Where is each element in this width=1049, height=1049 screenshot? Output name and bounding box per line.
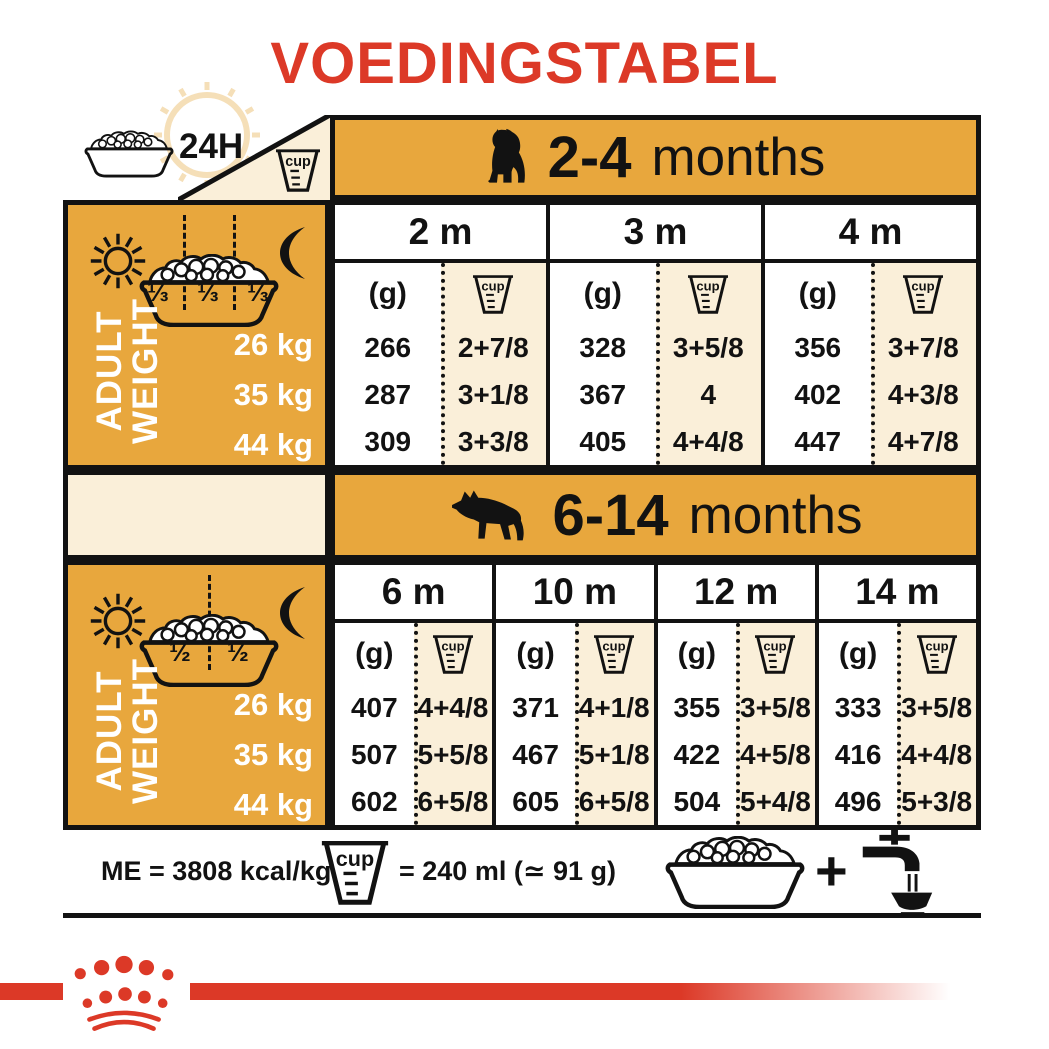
- month-column-4m: 4 m (g) cup 3563+7/8 4024+3/8 4474+7/8: [761, 205, 976, 465]
- cups-value: 3+1/8: [441, 372, 547, 419]
- age-word: months: [652, 127, 826, 188]
- meals-panel-2-4-months: ⅓ ⅓ ⅓ ADULT WEIGHT 26 kg 35 kg 44 kg: [63, 200, 330, 470]
- cups-value: 3+7/8: [871, 325, 977, 372]
- grams-value: 504: [658, 778, 737, 825]
- grams-value: 356: [765, 325, 871, 372]
- portion-fraction: ½: [214, 637, 262, 668]
- puppy-silhouette-icon: [486, 127, 528, 189]
- cups-value: 6+5/8: [575, 778, 654, 825]
- feeding-table: 24H cup 2-4 months: [63, 115, 981, 918]
- svg-text:cup: cup: [697, 279, 720, 294]
- moon-icon: [273, 585, 315, 641]
- cups-value: 3+5/8: [736, 685, 815, 732]
- svg-text:cup: cup: [482, 279, 505, 294]
- cups-value: 3+3/8: [441, 418, 547, 465]
- grams-value: 333: [819, 685, 898, 732]
- month-column-14m: 14 m (g) cup 3333+5/8 4164+4/8 4965+3/8: [815, 565, 976, 825]
- month-header: 14 m: [819, 565, 976, 623]
- measuring-cup-icon: cup: [276, 146, 320, 194]
- grams-value: 407: [335, 685, 414, 732]
- grams-value: 266: [335, 325, 441, 372]
- plus-sign: +: [815, 830, 848, 910]
- grams-unit: (g): [335, 263, 441, 325]
- cups-value: 3+5/8: [656, 325, 762, 372]
- month-column-6m: 6 m (g) cup 4074+4/8 5075+5/8 6026+5/8: [335, 565, 492, 825]
- month-values: (g) cup 2662+7/8 2873+1/8 3093+3/8: [335, 263, 546, 465]
- measuring-cup-icon: cup: [656, 263, 762, 325]
- section-header-6-14-months: 6-14 months: [330, 470, 981, 560]
- grams-unit: (g): [765, 263, 871, 325]
- daily-ration-legend: 24H cup: [63, 115, 330, 200]
- grams-value: 405: [550, 418, 656, 465]
- grams-unit: (g): [496, 623, 575, 685]
- month-header: 12 m: [658, 565, 815, 623]
- brand-stripe-left: [0, 983, 63, 1000]
- grams-unit: (g): [550, 263, 656, 325]
- weight-label: 26 kg: [205, 320, 325, 370]
- month-values: (g) cup 3333+5/8 4164+4/8 4965+3/8: [819, 623, 976, 825]
- measuring-cup-icon: cup: [321, 836, 389, 908]
- month-values: (g) cup 3553+5/8 4224+5/8 5045+4/8: [658, 623, 815, 825]
- month-column-2m: 2 m (g) cup 2662+7/8 2873+1/8 3093+3/8: [335, 205, 546, 465]
- section-header-2-4-months: 2-4 months: [330, 115, 981, 200]
- month-column-3m: 3 m (g) cup 3283+5/8 3674 4054+4/8: [546, 205, 761, 465]
- footer-info-strip: ME = 3808 kcal/kg cup = 240 ml (≃ 91 g) …: [63, 830, 981, 918]
- water-tap-icon: [857, 830, 935, 918]
- grams-unit: (g): [819, 623, 898, 685]
- brand-stripe-right: [190, 983, 982, 1000]
- month-column-12m: 12 m (g) cup 3553+5/8 4224+5/8 5045+4/8: [654, 565, 815, 825]
- grams-unit: (g): [658, 623, 737, 685]
- food-bowl-icon: [81, 123, 177, 185]
- royal-canin-crown-logo: [66, 950, 180, 1034]
- cups-value: 5+4/8: [736, 778, 815, 825]
- weight-label: 44 kg: [205, 420, 325, 470]
- portion-fraction: ⅓: [234, 277, 282, 308]
- adult-weight-label: ADULT WEIGHT: [80, 291, 176, 451]
- svg-text:cup: cup: [912, 279, 935, 294]
- grams-value: 605: [496, 778, 575, 825]
- month-header: 10 m: [496, 565, 653, 623]
- feeding-grid-2-4-months: 2 m (g) cup 2662+7/8 2873+1/8 3093+3/8: [330, 200, 981, 470]
- measuring-cup-icon: cup: [575, 623, 654, 685]
- grams-value: 416: [819, 732, 898, 779]
- measuring-cup-icon: cup: [736, 623, 815, 685]
- cups-value: 4+7/8: [871, 418, 977, 465]
- cups-value: 4+4/8: [656, 418, 762, 465]
- cups-value: 6+5/8: [414, 778, 493, 825]
- grams-value: 467: [496, 732, 575, 779]
- grams-value: 355: [658, 685, 737, 732]
- weight-rows: 26 kg 35 kg 44 kg: [205, 680, 325, 830]
- grams-value: 367: [550, 372, 656, 419]
- grams-value: 602: [335, 778, 414, 825]
- cups-value: 2+7/8: [441, 325, 547, 372]
- grams-value: 402: [765, 372, 871, 419]
- weight-label: 35 kg: [205, 730, 325, 780]
- cup-equivalence: = 240 ml (≃ 91 g): [399, 830, 616, 913]
- grams-value: 309: [335, 418, 441, 465]
- month-values: (g) cup 3283+5/8 3674 4054+4/8: [550, 263, 761, 465]
- svg-text:cup: cup: [925, 639, 948, 654]
- month-values: (g) cup 3714+1/8 4675+1/8 6056+5/8: [496, 623, 653, 825]
- month-column-10m: 10 m (g) cup 3714+1/8 4675+1/8 6056+5/8: [492, 565, 653, 825]
- svg-text:cup: cup: [336, 846, 374, 871]
- svg-text:cup: cup: [441, 639, 464, 654]
- grams-unit: (g): [335, 623, 414, 685]
- grams-value: 328: [550, 325, 656, 372]
- feeding-table-page: VOEDINGSTABEL 24H cup: [0, 0, 1049, 1049]
- spacer-cell: [63, 470, 330, 560]
- cups-value: 4+4/8: [414, 685, 493, 732]
- weight-label: 26 kg: [205, 680, 325, 730]
- weight-label: 44 kg: [205, 780, 325, 830]
- grams-value: 496: [819, 778, 898, 825]
- svg-text:cup: cup: [764, 639, 787, 654]
- cups-value: 4+1/8: [575, 685, 654, 732]
- measuring-cup-icon: cup: [897, 623, 976, 685]
- cup-label: cup: [285, 154, 311, 170]
- cups-value: 4+3/8: [871, 372, 977, 419]
- measuring-cup-icon: cup: [871, 263, 977, 325]
- moon-icon: [273, 225, 315, 281]
- age-word: months: [689, 485, 863, 546]
- month-values: (g) cup 4074+4/8 5075+5/8 6026+5/8: [335, 623, 492, 825]
- measuring-cup-icon: cup: [414, 623, 493, 685]
- age-range: 2-4: [548, 124, 632, 191]
- feeding-grid-6-14-months: 6 m (g) cup 4074+4/8 5075+5/8 6026+5/8: [330, 560, 981, 830]
- weight-rows: 26 kg 35 kg 44 kg: [205, 320, 325, 470]
- adult-weight-label: ADULT WEIGHT: [80, 651, 176, 811]
- grams-value: 507: [335, 732, 414, 779]
- cups-value: 4: [656, 372, 762, 419]
- month-header: 2 m: [335, 205, 546, 263]
- svg-text:cup: cup: [603, 639, 626, 654]
- age-range: 6-14: [553, 482, 669, 549]
- food-bowl-icon: [659, 836, 811, 909]
- month-header: 6 m: [335, 565, 492, 623]
- cups-value: 5+3/8: [897, 778, 976, 825]
- grams-value: 371: [496, 685, 575, 732]
- cups-value: 5+1/8: [575, 732, 654, 779]
- weight-label: 35 kg: [205, 370, 325, 420]
- grams-value: 447: [765, 418, 871, 465]
- grams-value: 287: [335, 372, 441, 419]
- cups-value: 4+5/8: [736, 732, 815, 779]
- energy-value: ME = 3808 kcal/kg: [101, 830, 331, 913]
- adult-dog-silhouette-icon: [449, 486, 533, 544]
- measuring-cup-icon: cup: [441, 263, 547, 325]
- grams-value: 422: [658, 732, 737, 779]
- cups-value: 4+4/8: [897, 732, 976, 779]
- month-values: (g) cup 3563+7/8 4024+3/8 4474+7/8: [765, 263, 976, 465]
- month-header: 4 m: [765, 205, 976, 263]
- meals-panel-6-14-months: ½ ½ ADULT WEIGHT 26 kg 35 kg 44 kg: [63, 560, 330, 830]
- portion-fraction: ⅓: [184, 277, 232, 308]
- cups-value: 5+5/8: [414, 732, 493, 779]
- month-header: 3 m: [550, 205, 761, 263]
- cups-value: 3+5/8: [897, 685, 976, 732]
